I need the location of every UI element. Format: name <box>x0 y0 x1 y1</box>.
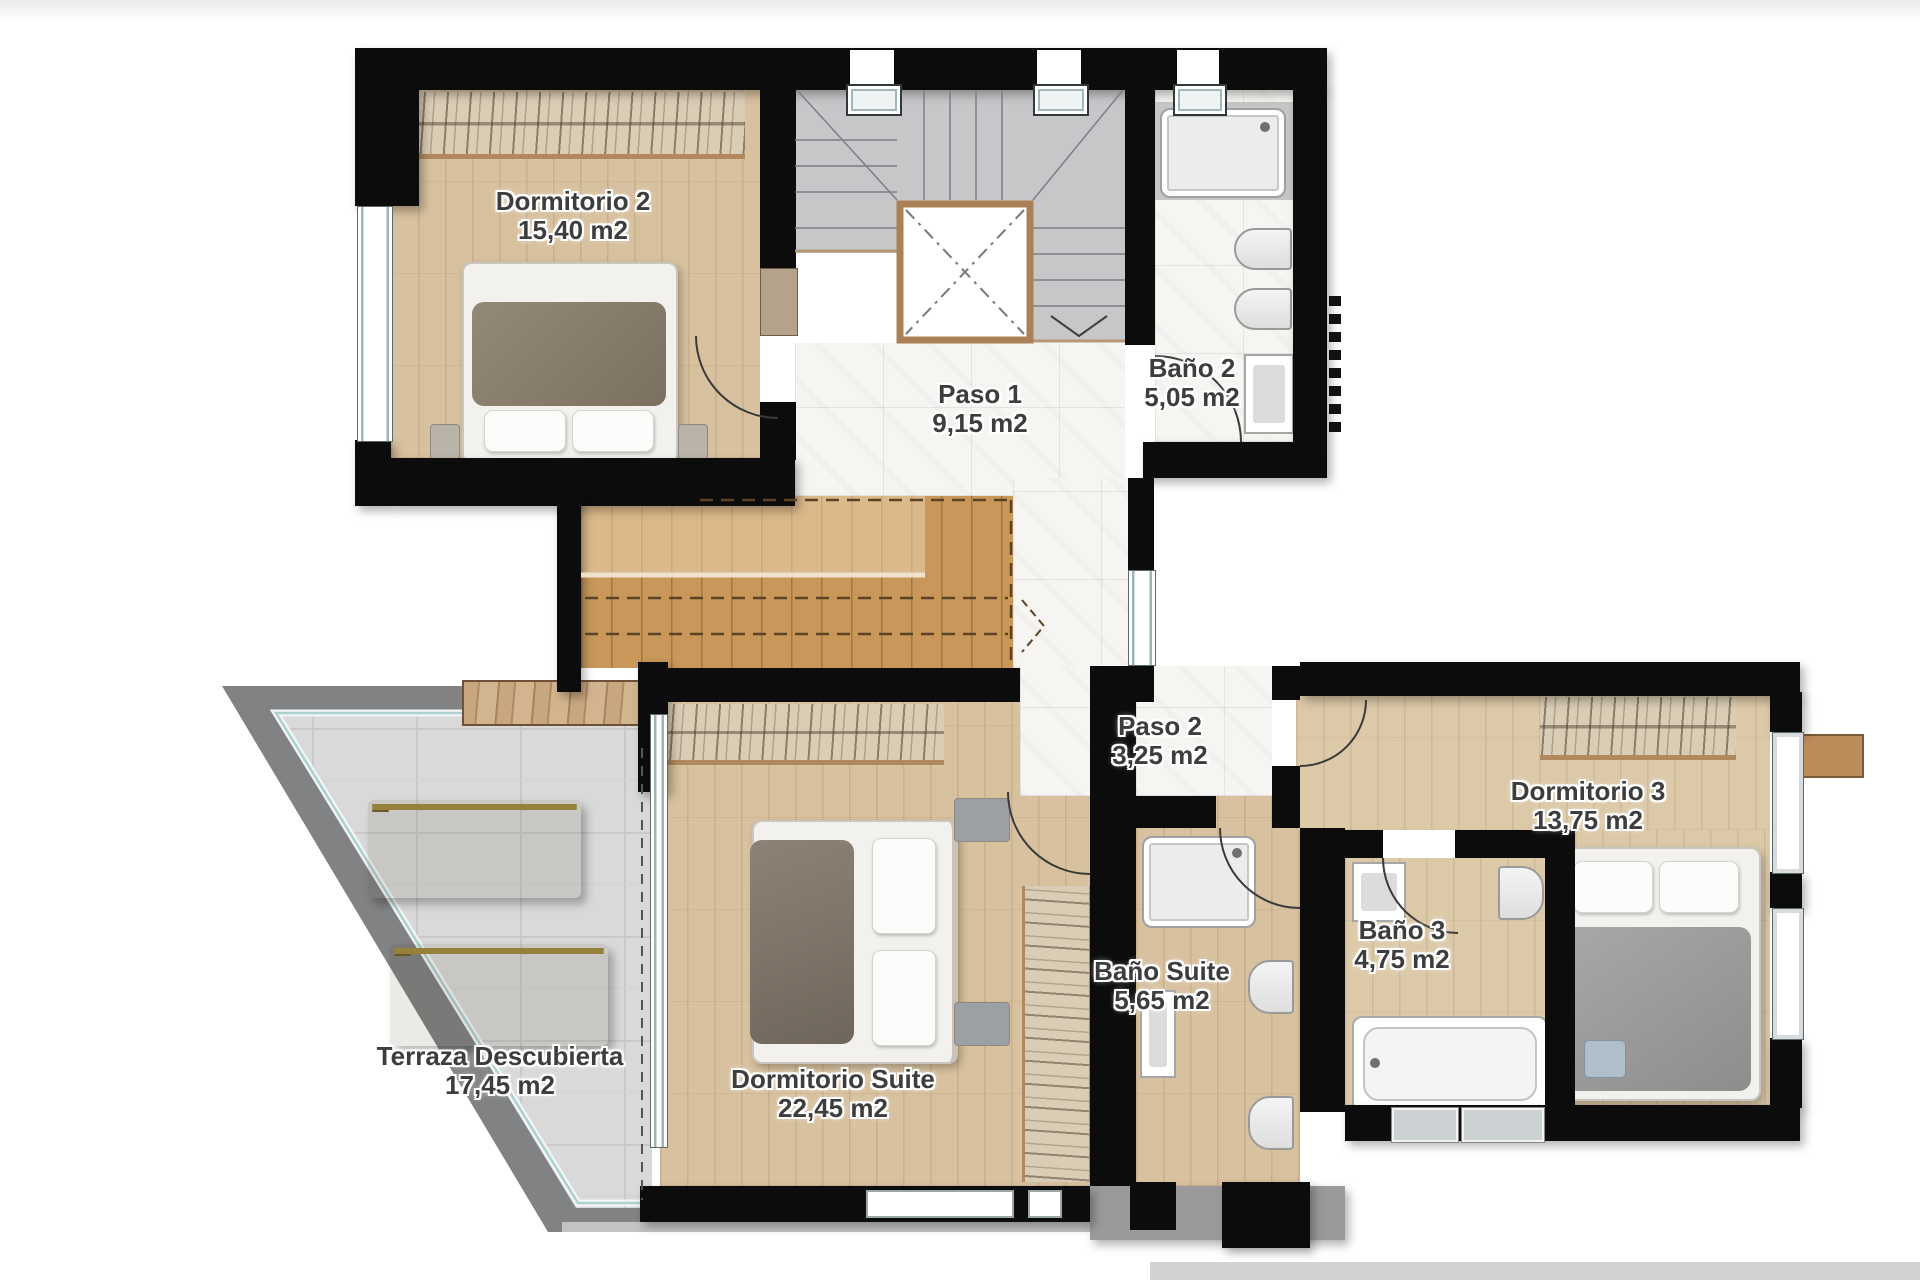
bed-pillow <box>872 838 936 934</box>
room-area: 5,65 m2 <box>1094 986 1230 1015</box>
wall-segment <box>1545 830 1575 1110</box>
window-corridor <box>1128 570 1156 666</box>
room-label-dormitorio-2: Dormitorio 2 15,40 m2 <box>496 187 651 245</box>
room-label-dormitorio-suite: Dormitorio Suite 22,45 m2 <box>731 1065 935 1123</box>
window-suite-south-small <box>1028 1190 1062 1218</box>
wall-segment <box>760 90 796 272</box>
room-area: 3,25 m2 <box>1112 741 1207 770</box>
wall-segment <box>1293 88 1327 442</box>
stair-void <box>900 204 1030 340</box>
floorplan-canvas: Dormitorio 2 15,40 m2 Paso 1 9,15 m2 Bañ… <box>0 0 1920 1280</box>
nightstand <box>954 1002 1010 1046</box>
toilet <box>1234 288 1292 330</box>
bed-pillow <box>484 410 566 452</box>
washbasin-bowl <box>1253 365 1285 423</box>
toilet <box>1498 866 1544 920</box>
wardrobe-dormitorio-2 <box>419 92 745 159</box>
wall-segment <box>1300 828 1345 1112</box>
wardrobe-dormitorio-3 <box>1540 697 1736 760</box>
double-bed-dormitorio-2 <box>462 262 678 464</box>
shower-drain <box>1260 122 1270 132</box>
lounger-frame <box>372 810 389 812</box>
room-area: 22,45 m2 <box>731 1094 935 1123</box>
sun-lounger <box>390 944 608 1046</box>
window-bano-3-south <box>1392 1108 1458 1142</box>
wall-segment <box>1128 478 1154 570</box>
stair-flight-right <box>1033 88 1125 342</box>
shower-tray-bano-suite <box>1142 836 1256 928</box>
room-label-bano-2: Baño 2 5,05 m2 <box>1144 354 1239 412</box>
wall-segment <box>760 402 796 460</box>
bed-blanket <box>750 840 854 1044</box>
lounger-cushion <box>372 808 577 810</box>
lounger-frame <box>394 954 411 956</box>
stool <box>1584 1040 1626 1078</box>
window-sill <box>562 1222 1090 1232</box>
window-suite-south <box>866 1190 1014 1218</box>
nightstand <box>430 424 460 460</box>
washbasin-bowl <box>1361 873 1397 911</box>
room-area: 9,15 m2 <box>932 409 1027 438</box>
room-area: 13,75 m2 <box>1511 806 1666 835</box>
wall-segment <box>1300 662 1800 696</box>
wall-segment <box>355 440 391 506</box>
wall-segment <box>1272 766 1300 828</box>
shower-tray-bano-2 <box>1160 108 1286 198</box>
bed-blanket <box>472 302 666 406</box>
room-name: Baño Suite <box>1094 957 1230 986</box>
wardrobe-suite <box>668 704 944 765</box>
window-stairwell <box>846 84 902 116</box>
window-suite-terrace <box>650 714 668 1148</box>
window-stairwell <box>1033 84 1089 116</box>
window-dormitorio-3 <box>1772 732 1804 874</box>
room-label-dormitorio-3: Dormitorio 3 13,75 m2 <box>1511 777 1666 835</box>
wall-segment <box>419 48 775 90</box>
scan-shade <box>0 0 1920 22</box>
room-name: Paso 2 <box>1112 712 1207 741</box>
wall-segment <box>1272 666 1300 700</box>
stair-flight-top <box>897 88 1033 202</box>
wall-pier <box>1130 1182 1176 1230</box>
lounger-cushion <box>394 952 604 954</box>
room-name: Dormitorio 2 <box>496 187 651 216</box>
room-name: Dormitorio Suite <box>731 1065 935 1094</box>
wall-segment <box>666 668 1020 702</box>
sun-lounger <box>368 800 581 898</box>
wall-segment <box>640 1186 1090 1222</box>
wall-hatch-marks <box>1329 296 1341 432</box>
window-dormitorio-3-south <box>1462 1108 1544 1142</box>
room-label-paso-2: Paso 2 3,25 m2 <box>1112 712 1207 770</box>
room-name: Dormitorio 3 <box>1511 777 1666 806</box>
room-area: 4,75 m2 <box>1354 945 1449 974</box>
door-jamb <box>760 268 798 336</box>
wall-segment <box>1345 830 1383 858</box>
room-area: 17,45 m2 <box>377 1071 624 1100</box>
room-name: Terraza Descubierta <box>377 1042 624 1071</box>
room-label-terraza: Terraza Descubierta 17,45 m2 <box>377 1042 624 1100</box>
washbasin <box>1244 354 1294 434</box>
nightstand <box>678 424 708 460</box>
suite-entry-floor <box>1020 666 1090 796</box>
wall-segment <box>1770 1038 1802 1108</box>
wood-staircase-upper-flight <box>581 496 925 573</box>
wall-segment <box>391 458 795 506</box>
shower-drain <box>1232 848 1242 858</box>
toilet <box>1248 960 1294 1014</box>
window-dormitorio-2 <box>357 206 393 442</box>
bed-pillow <box>572 410 654 452</box>
wardrobe-suite-column <box>1022 886 1094 1182</box>
wall-pier <box>1222 1182 1310 1248</box>
bathtub <box>1352 1016 1548 1112</box>
window-bano-2 <box>1173 84 1227 116</box>
bidet <box>1248 1096 1294 1150</box>
watermark-bar <box>1150 1262 1920 1280</box>
washbasin <box>1352 862 1406 922</box>
wall-segment <box>1770 692 1802 732</box>
bathtub-faucet <box>1370 1058 1380 1068</box>
room-area: 15,40 m2 <box>496 216 651 245</box>
wall-segment <box>1136 796 1216 828</box>
wall-segment <box>1143 442 1327 478</box>
wall-segment <box>355 48 419 206</box>
bathtub-inner <box>1363 1027 1537 1101</box>
exterior-ledge <box>1802 734 1864 778</box>
room-name: Baño 3 <box>1354 916 1449 945</box>
wall-segment <box>1770 872 1802 908</box>
room-label-bano-3: Baño 3 4,75 m2 <box>1354 916 1449 974</box>
room-label-bano-suite: Baño Suite 5,65 m2 <box>1094 957 1230 1015</box>
bed-pillow <box>1659 861 1739 913</box>
sink <box>1234 228 1292 270</box>
stone-wall <box>462 680 642 726</box>
room-area: 5,05 m2 <box>1144 383 1239 412</box>
bed-pillow <box>1573 861 1653 913</box>
room-label-paso-1: Paso 1 9,15 m2 <box>932 380 1027 438</box>
bed-pillow <box>872 950 936 1046</box>
wall-segment <box>557 496 581 692</box>
room-name: Paso 1 <box>932 380 1027 409</box>
nightstand <box>954 798 1010 842</box>
window-dormitorio-3 <box>1772 908 1804 1040</box>
double-bed-suite <box>752 820 958 1064</box>
corridor-floor-paso-1 <box>1013 478 1128 668</box>
wall-segment <box>1125 90 1155 345</box>
room-name: Baño 2 <box>1144 354 1239 383</box>
